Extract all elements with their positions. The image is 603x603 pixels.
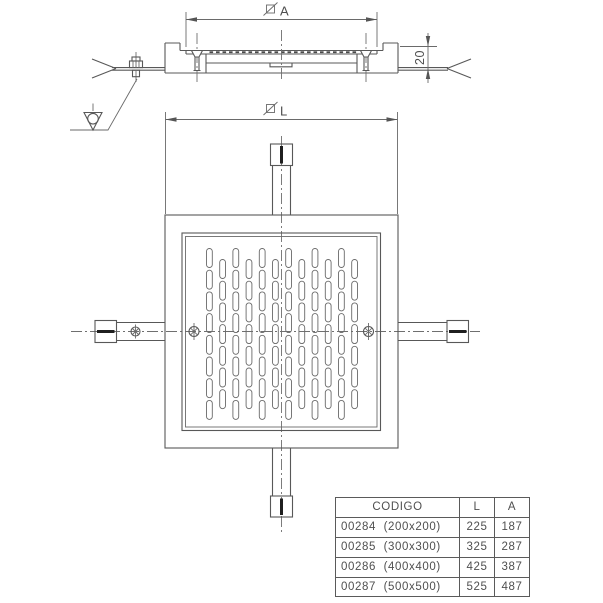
drawing-sheet: A	[0, 0, 603, 603]
break-symbol-right-icon	[447, 59, 471, 78]
anchor-bolt-section	[130, 52, 143, 83]
break-symbol-left-icon	[92, 59, 116, 78]
dim-20-label: 20	[413, 50, 427, 65]
countersunk-screw-left	[192, 33, 203, 85]
dimension-20: 20	[400, 33, 437, 83]
table-row: 00284 (200x200) 225 187	[336, 517, 530, 537]
table-row: 00287 (500x500) 525 487	[336, 577, 530, 597]
square-section-symbol-icon	[264, 102, 278, 115]
header-l: L	[460, 498, 495, 518]
table-row: 00286 (400x400) 425 387	[336, 557, 530, 577]
header-a: A	[495, 498, 530, 518]
grate-slots	[207, 249, 358, 420]
section-view: A	[70, 3, 471, 131]
table-header-row: CODIGO L A	[336, 498, 530, 518]
plan-view: L	[71, 102, 480, 533]
dim-l-label: L	[280, 104, 288, 119]
square-section-symbol-icon	[264, 3, 278, 16]
spec-table: CODIGO L A 00284 (200x200) 225 187 00285…	[335, 497, 530, 597]
countersunk-screw-right	[361, 33, 372, 85]
surface-finish-symbol	[70, 79, 137, 130]
dim-a-label: A	[280, 4, 289, 19]
header-codigo: CODIGO	[336, 498, 460, 518]
table-row: 00285 (300x300) 325 287	[336, 537, 530, 557]
